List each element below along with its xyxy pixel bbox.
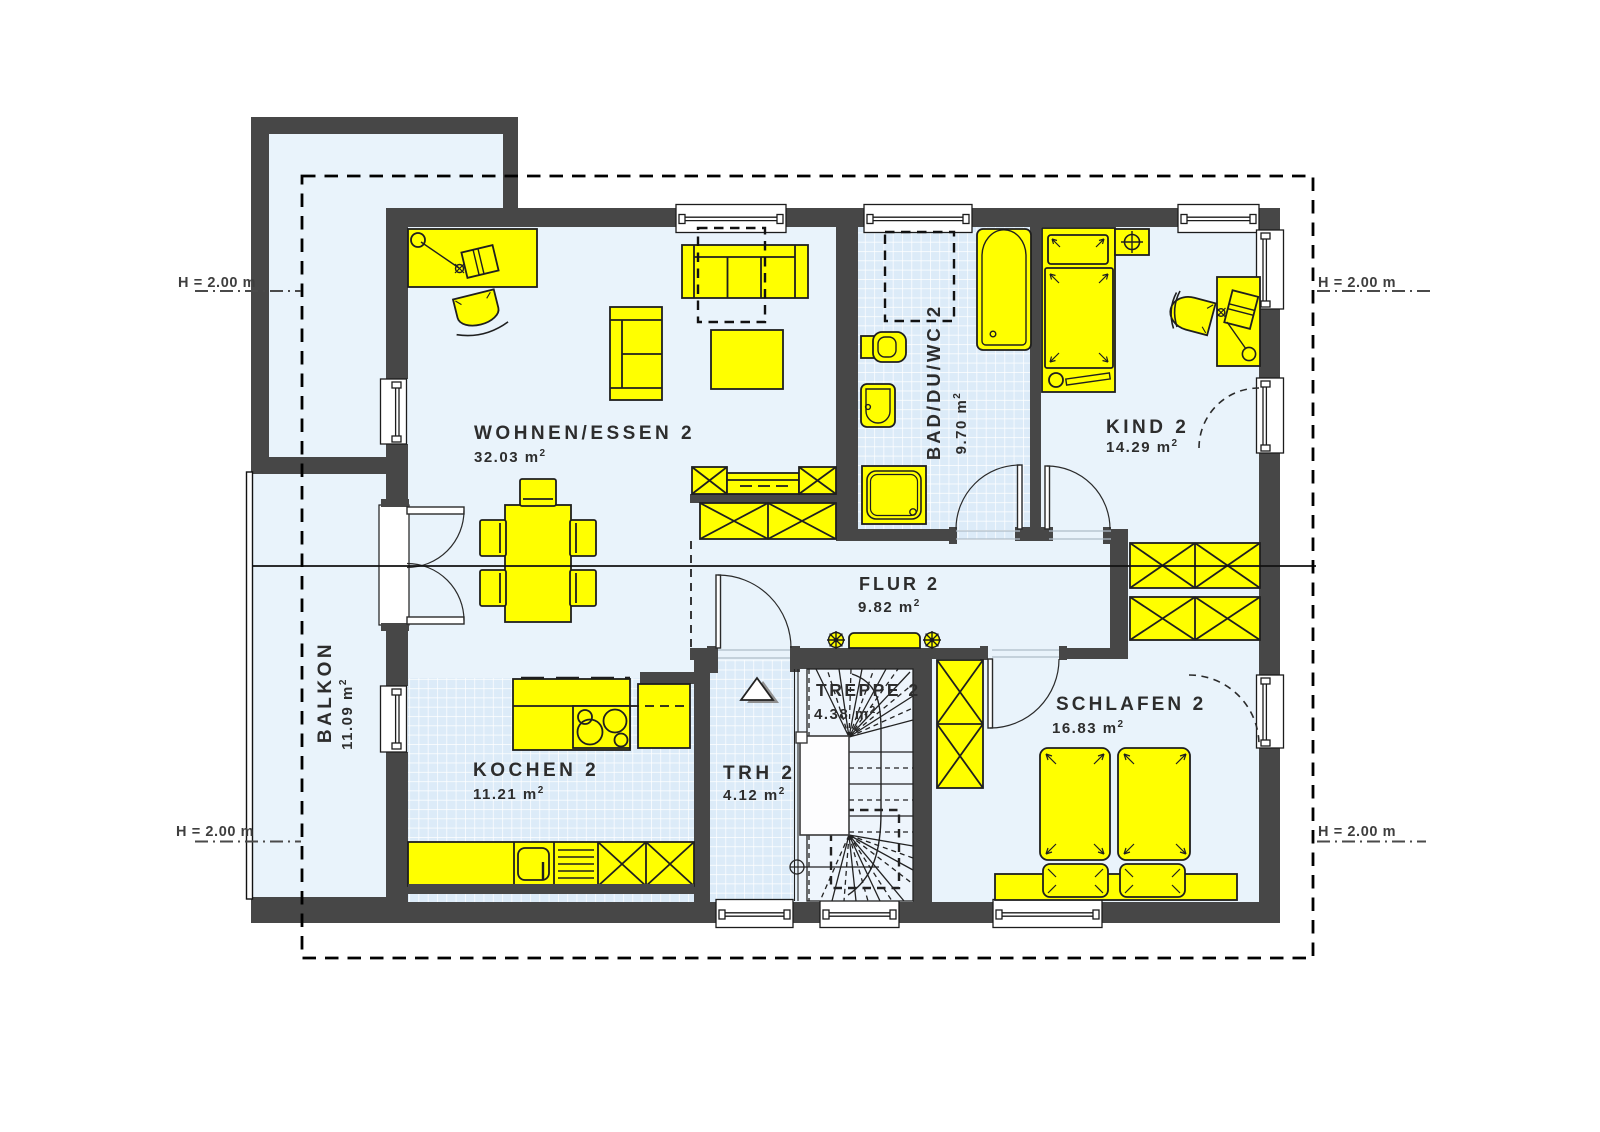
svg-text:11.21 m2: 11.21 m2 — [473, 785, 545, 803]
svg-text:KIND 2: KIND 2 — [1106, 417, 1189, 438]
svg-text:H = 2.00 m: H = 2.00 m — [1318, 824, 1396, 840]
svg-text:16.83 m2: 16.83 m2 — [1052, 719, 1125, 737]
svg-text:H = 2.00 m: H = 2.00 m — [176, 824, 254, 840]
svg-text:TRH 2: TRH 2 — [723, 763, 795, 784]
svg-text:WOHNEN/ESSEN 2: WOHNEN/ESSEN 2 — [474, 423, 695, 444]
svg-text:4.38 m2: 4.38 m2 — [814, 705, 877, 723]
svg-text:FLUR 2: FLUR 2 — [859, 574, 940, 594]
svg-text:SCHLAFEN 2: SCHLAFEN 2 — [1056, 694, 1206, 715]
svg-text:11.09 m2: 11.09 m2 — [338, 678, 356, 750]
svg-text:14.29 m2: 14.29 m2 — [1106, 438, 1179, 456]
svg-text:TREPPE 2: TREPPE 2 — [816, 680, 921, 700]
svg-text:9.70 m2: 9.70 m2 — [952, 392, 970, 455]
svg-text:4.12 m2: 4.12 m2 — [723, 786, 786, 804]
svg-text:H = 2.00 m: H = 2.00 m — [178, 275, 256, 291]
svg-text:BAD/DU/WC 2: BAD/DU/WC 2 — [923, 304, 944, 460]
svg-text:BALKON: BALKON — [315, 641, 336, 743]
svg-text:KOCHEN 2: KOCHEN 2 — [473, 760, 599, 781]
svg-text:9.82 m2: 9.82 m2 — [858, 598, 921, 616]
svg-text:H = 2.00 m: H = 2.00 m — [1318, 275, 1396, 291]
svg-text:32.03 m2: 32.03 m2 — [474, 448, 547, 466]
